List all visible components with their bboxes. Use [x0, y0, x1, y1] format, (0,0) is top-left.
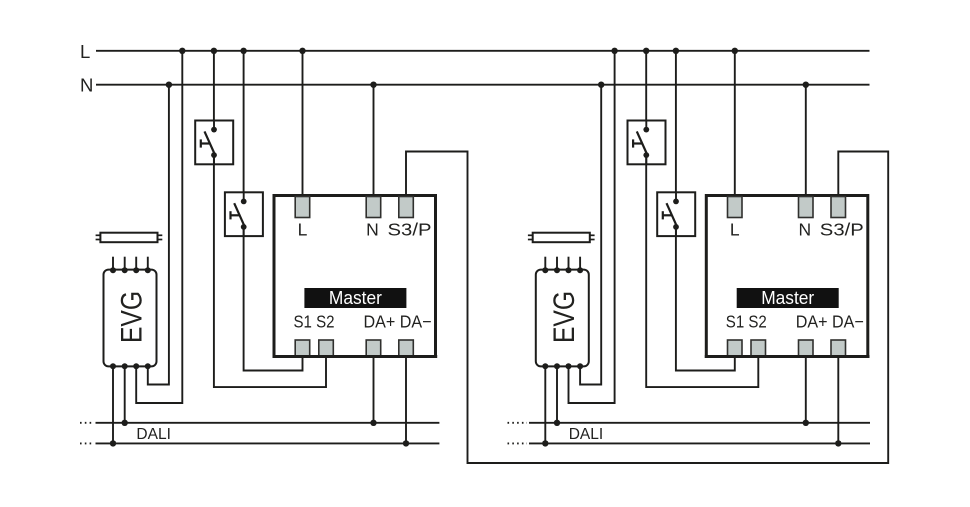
svg-text:S3/P: S3/P [820, 220, 864, 240]
svg-text:S3/P: S3/P [388, 220, 432, 240]
svg-text:N: N [366, 220, 379, 240]
svg-text:N: N [80, 74, 93, 95]
svg-text:DA+ DA−: DA+ DA− [796, 312, 864, 332]
svg-text:EVG: EVG [116, 291, 149, 343]
svg-text:Master: Master [329, 287, 382, 308]
svg-text:L: L [730, 220, 740, 240]
svg-text:L: L [298, 220, 308, 240]
svg-text:S1 S2: S1 S2 [726, 312, 767, 332]
svg-text:S1 S2: S1 S2 [294, 312, 335, 332]
svg-text:DALI: DALI [136, 426, 171, 443]
svg-text:DA+ DA−: DA+ DA− [364, 312, 432, 332]
svg-text:L: L [80, 41, 90, 62]
svg-text:EVG: EVG [548, 291, 581, 343]
svg-text:DALI: DALI [569, 426, 604, 443]
svg-text:Master: Master [761, 287, 814, 308]
svg-text:N: N [798, 220, 811, 240]
